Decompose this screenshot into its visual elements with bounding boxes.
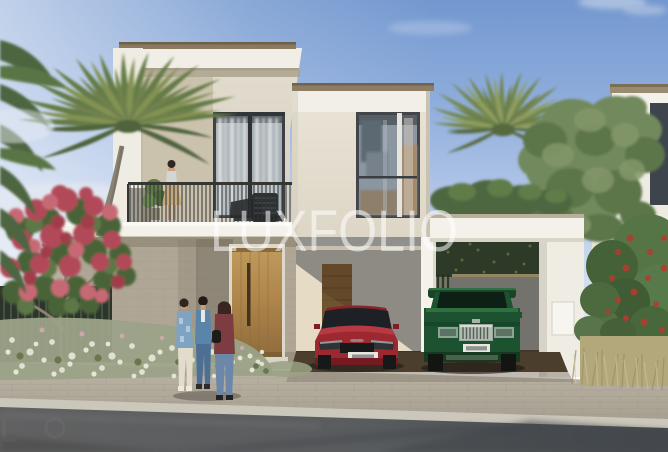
- svg-text:LUXFOLIO: LUXFOLIO: [210, 199, 458, 264]
